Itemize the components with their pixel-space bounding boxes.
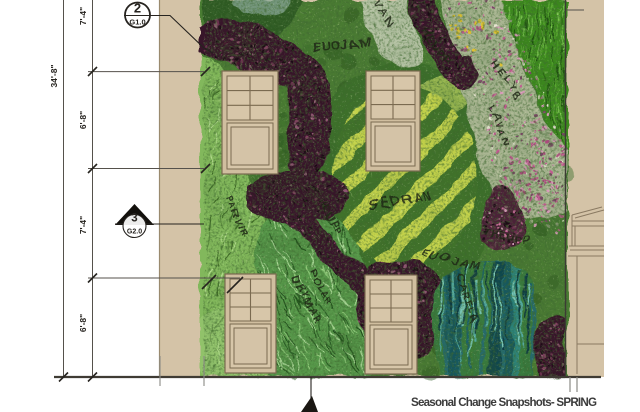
svg-text:G1.0: G1.0 [129, 18, 145, 27]
svg-text:6'-8": 6'-8" [78, 314, 88, 332]
svg-text:EUOJAM: EUOJAM [311, 36, 371, 54]
svg-text:2: 2 [134, 1, 141, 16]
svg-text:3: 3 [131, 213, 137, 225]
svg-text:G2.0: G2.0 [127, 229, 142, 236]
svg-text:34'-8": 34'-8" [49, 64, 59, 87]
svg-text:7'-4": 7'-4" [78, 216, 88, 234]
svg-text:Seasonal Change Snapshots- SPR: Seasonal Change Snapshots- SPRING [411, 396, 597, 409]
svg-text:7'-4": 7'-4" [78, 7, 88, 25]
svg-text:6'-8": 6'-8" [78, 111, 88, 129]
